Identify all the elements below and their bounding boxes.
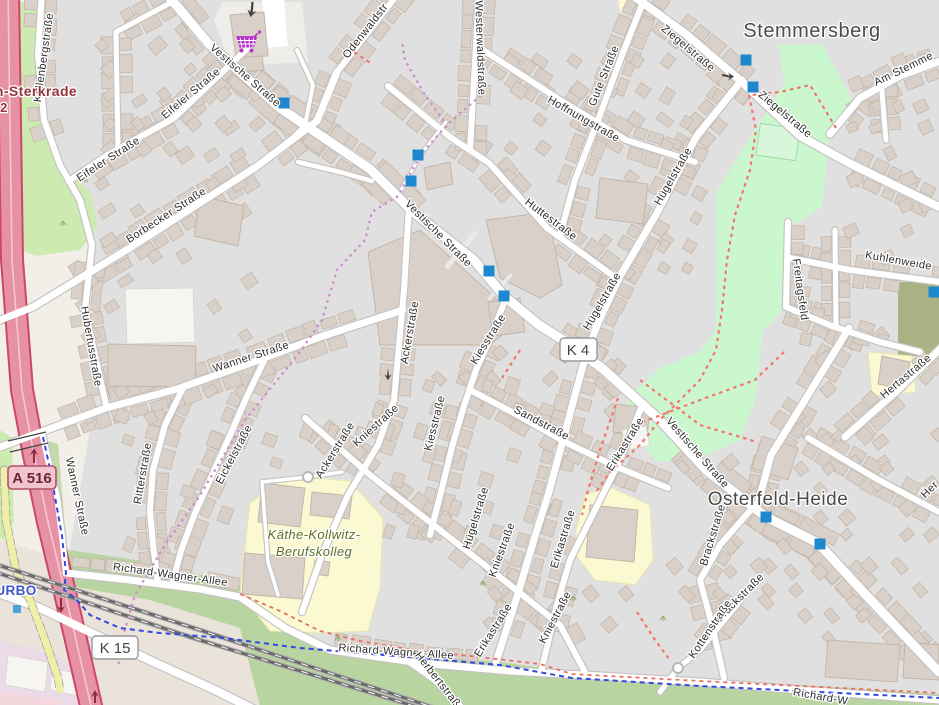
svg-text:n-Sterkrade: n-Sterkrade: [0, 83, 77, 99]
svg-text:2: 2: [0, 100, 8, 115]
svg-text:Stemmersberg: Stemmersberg: [743, 20, 880, 42]
svg-text:K 4: K 4: [567, 342, 590, 359]
svg-text:Osterfeld-Heide: Osterfeld-Heide: [708, 489, 849, 510]
svg-text:Käthe-Kollwitz-: Käthe-Kollwitz-: [268, 527, 361, 542]
svg-text:A 516: A 516: [12, 470, 51, 487]
svg-text:K 15: K 15: [100, 640, 131, 657]
svg-text:Berufskolleg: Berufskolleg: [276, 544, 353, 559]
svg-text:URBO: URBO: [0, 583, 37, 598]
